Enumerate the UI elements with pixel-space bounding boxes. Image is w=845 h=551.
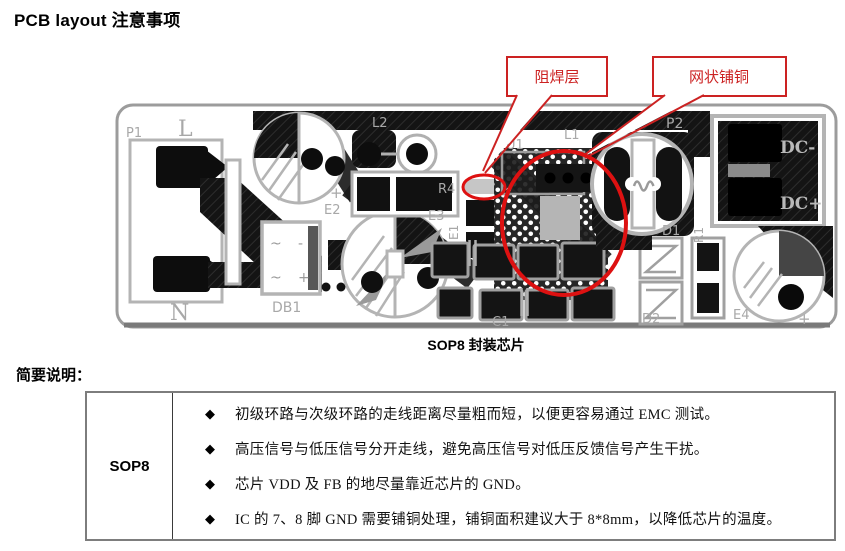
silkscreen-dc-minus: DC- — [780, 138, 815, 158]
callout-mesh-copper: 网状铺铜 — [653, 57, 786, 96]
note-row: ◆ 高压信号与低压信号分开走线，避免高压信号对低压反馈信号产生干扰。 — [205, 431, 830, 466]
note-text: 高压信号与低压信号分开走线，避免高压信号对低压反馈信号产生干扰。 — [235, 438, 709, 459]
notes-list: ◆ 初级环路与次级环路的走线距离尽量粗而短，以便更容易通过 EMC 测试。 ◆ … — [173, 393, 834, 539]
bullet-diamond-icon: ◆ — [205, 511, 215, 527]
silkscreen-n: N — [170, 301, 189, 326]
bullet-diamond-icon: ◆ — [205, 406, 215, 422]
silkscreen-l2: L2 — [372, 116, 388, 131]
silkscreen-p2: P2 — [666, 116, 683, 132]
note-row: ◆ 芯片 VDD 及 FB 的地尽量靠近芯片的 GND。 — [205, 466, 830, 501]
silkscreen-dc-plus: DC+ — [780, 194, 823, 214]
silkscreen-d2: D2 — [642, 312, 660, 327]
notes-heading: 简要说明： — [16, 366, 845, 385]
note-row: ◆ IC 的 7、8 脚 GND 需要铺铜处理，铺铜面积建议大于 8*8mm，以… — [205, 501, 830, 536]
inductor-l1 — [592, 132, 694, 236]
silkscreen-c1: C1 — [492, 315, 509, 330]
page-title: PCB layout 注意事项 — [14, 10, 845, 31]
pcb-board: ~ - ~ + — [117, 105, 836, 330]
silkscreen-p1: P1 — [126, 126, 142, 141]
silkscreen-e4: E4 — [733, 308, 750, 323]
pcb-figure-svg: ~ - ~ + — [0, 50, 845, 335]
note-row: ◆ 初级环路与次级环路的走线距离尽量粗而短，以便更容易通过 EMC 测试。 — [205, 396, 830, 431]
note-text: IC 的 7、8 脚 GND 需要铺铜处理，铺铜面积建议大于 8*8mm，以降低… — [235, 508, 781, 529]
bullet-diamond-icon: ◆ — [205, 476, 215, 492]
silkscreen-e2-plus: + — [330, 184, 343, 202]
silkscreen-r1: R1 — [692, 227, 706, 243]
bullet-diamond-icon: ◆ — [205, 441, 215, 457]
silkscreen-e3: E3 — [428, 209, 445, 224]
notes-row-label: SOP8 — [87, 393, 173, 539]
silkscreen-e1: E1 — [447, 225, 461, 240]
callout-solder-mask: 阻焊层 — [507, 57, 607, 96]
note-text: 芯片 VDD 及 FB 的地尽量靠近芯片的 GND。 — [235, 473, 530, 494]
resistor-r1 — [692, 238, 724, 318]
db1-mark-minus: - — [298, 236, 303, 252]
pcb-figure: ~ - ~ + — [0, 50, 845, 335]
notes-table: SOP8 ◆ 初级环路与次级环路的走线距离尽量粗而短，以便更容易通过 EMC 测… — [85, 391, 836, 541]
silkscreen-e2: E2 — [324, 203, 341, 218]
db1-mark-plus: + — [298, 270, 310, 286]
silkscreen-l1: L1 — [564, 128, 580, 143]
silkscreen-r4: R4 — [438, 182, 455, 197]
db1-mark-ac2: ~ — [270, 270, 282, 286]
fuse-outline — [226, 160, 240, 284]
db1-mark-ac1: ~ — [270, 236, 282, 252]
callout-solder-mask-label: 阻焊层 — [534, 69, 579, 86]
note-text: 初级环路与次级环路的走线距离尽量粗而短，以便更容易通过 EMC 测试。 — [235, 403, 719, 424]
silkscreen-d1: D1 — [662, 224, 680, 239]
silkscreen-l: L — [178, 117, 193, 142]
chip-body — [540, 196, 580, 240]
silkscreen-db1: DB1 — [272, 300, 301, 316]
silkscreen-e4-plus: + — [798, 310, 811, 328]
callout-mesh-copper-label: 网状铺铜 — [689, 69, 749, 86]
figure-caption: SOP8 封装芯片 — [116, 337, 836, 354]
